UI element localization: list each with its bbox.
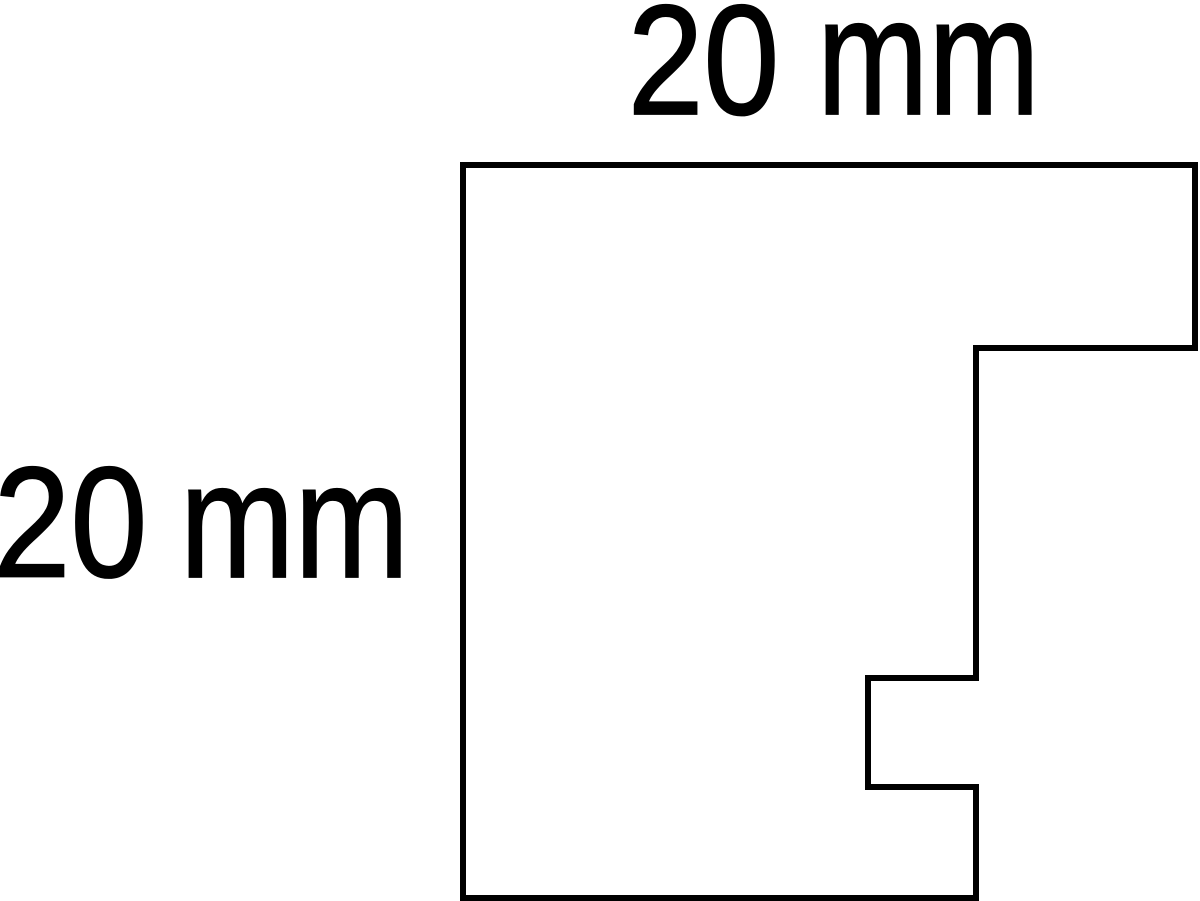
svg-text:20: 20 [628, 0, 779, 148]
svg-text:mm: mm [180, 430, 409, 613]
svg-text:20: 20 [0, 435, 147, 610]
svg-text:mm: mm [817, 0, 1040, 150]
